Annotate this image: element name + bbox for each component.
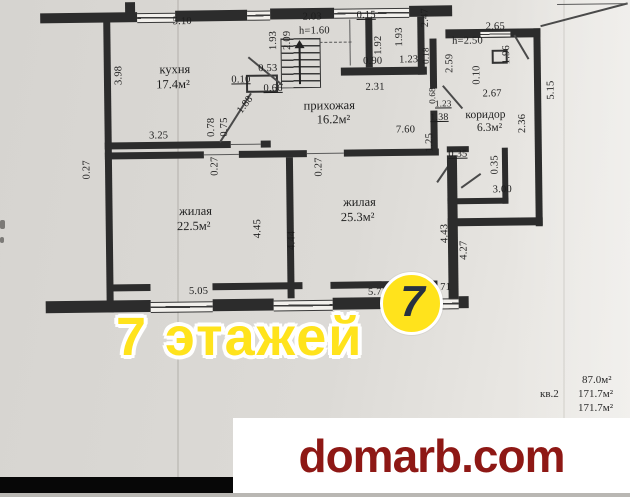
room-name-living1: жилая — [179, 204, 212, 219]
room-area-kitchen: 17.4м² — [156, 77, 190, 92]
dim-label: 4.44 — [286, 231, 297, 250]
dim-label: 4.27 — [458, 241, 469, 260]
wall — [448, 217, 543, 226]
room-name-kitchen: кухня — [159, 62, 190, 77]
door-opening — [204, 154, 239, 155]
dim-label: h=2.50 — [452, 35, 483, 46]
dim-label: 2.67 — [482, 88, 501, 99]
wall — [261, 141, 271, 148]
photo-black-bar — [0, 477, 233, 493]
leader-line — [540, 2, 627, 26]
dim-label: 1.38 — [430, 112, 448, 123]
dim-label: h=1.60 — [299, 25, 330, 36]
dim-label: 0.75 — [219, 117, 230, 136]
leader-line — [461, 173, 481, 188]
dim-label: 5.05 — [189, 286, 208, 297]
floorplan-photo: 5.10 3.98 0.10 0.53 0.66 1.88 0.78 0.75 … — [0, 0, 630, 493]
agency-logo-icon: 7 — [380, 272, 443, 335]
dim-label: 0.27 — [313, 157, 324, 176]
room-area-corridor: 6.3м² — [477, 122, 502, 134]
dim-label: 2.03 — [303, 11, 322, 22]
wall — [105, 141, 231, 150]
wall — [125, 2, 135, 13]
dim-label: 1.23 — [435, 98, 452, 108]
total-area-1: 87.0м² — [582, 374, 612, 386]
dim-label: 3.98 — [113, 66, 124, 85]
dim-label: 0.18 — [421, 47, 431, 64]
dim-label: 1.23 — [399, 54, 418, 65]
dim-label: 0.90 — [363, 56, 382, 67]
wall — [103, 20, 114, 312]
wall — [105, 151, 204, 159]
dim-label: 0.66 — [263, 83, 282, 94]
wall — [286, 157, 295, 298]
room-area-living2: 25.3м² — [341, 210, 375, 225]
logo-digit: 7 — [400, 280, 424, 324]
wall — [533, 28, 542, 226]
dim-label: 3.00 — [493, 184, 512, 195]
wall — [459, 296, 469, 308]
watermark-text: 7 этажей — [116, 306, 363, 368]
room-area-living1: 22.5м² — [177, 219, 211, 234]
stair-arrow-icon — [294, 40, 304, 48]
dim-label: 0.35 — [489, 155, 500, 174]
dim-label: 0.10 — [471, 65, 482, 84]
total-area-2: 171.7м² — [578, 388, 613, 400]
headroom-dashed-line — [320, 42, 352, 43]
site-name: domarb.com — [298, 429, 564, 483]
wall — [108, 284, 150, 292]
dim-label: 0.27 — [81, 160, 92, 179]
dim-label: 0.35 — [448, 149, 467, 160]
dim-label: 0.10 — [231, 74, 250, 85]
dim-label: 2.47 — [420, 8, 431, 27]
dim-label: 5.15 — [545, 80, 556, 99]
wall — [502, 148, 509, 204]
dim-label: 2.65 — [486, 21, 505, 32]
wall — [341, 67, 427, 76]
dim-label: 3.25 — [149, 130, 168, 141]
dim-label: 0.15 — [357, 10, 376, 21]
dim-label: 0.53 — [258, 63, 277, 74]
total-area-3: 171.7м² — [578, 402, 613, 414]
wall — [212, 282, 302, 290]
dim-label: 5.10 — [173, 16, 192, 27]
dim-label: 1.93 — [394, 27, 405, 46]
window — [137, 13, 175, 23]
dim-label: 2.59 — [444, 54, 455, 73]
dim-label: 4.45 — [252, 219, 263, 238]
room-name-corridor: коридор — [465, 109, 505, 121]
dim-label: 7.60 — [396, 124, 415, 135]
dim-label: 0.78 — [206, 118, 217, 137]
wall — [239, 150, 307, 158]
dim-label: 4.43 — [439, 224, 450, 243]
wall — [40, 12, 137, 23]
door-swing — [513, 35, 529, 60]
dim-label: 2.09 — [282, 31, 293, 50]
room-area-hallway: 16.2м² — [317, 112, 351, 127]
dim-label: 1.92 — [373, 36, 384, 55]
room-name-living2: жилая — [343, 195, 376, 210]
dim-label: 1.96 — [501, 45, 512, 64]
unit-label: кв.2 — [540, 388, 559, 400]
dim-label: 0.27 — [209, 157, 220, 176]
dim-label: 2.31 — [365, 82, 384, 93]
dim-label: 2.36 — [517, 114, 528, 133]
door-opening — [307, 153, 344, 154]
dim-label: 1.25 — [424, 133, 435, 152]
door-opening — [231, 144, 261, 145]
dim-label: 1.93 — [268, 31, 279, 50]
site-banner: domarb.com — [233, 418, 630, 493]
window — [247, 11, 270, 21]
